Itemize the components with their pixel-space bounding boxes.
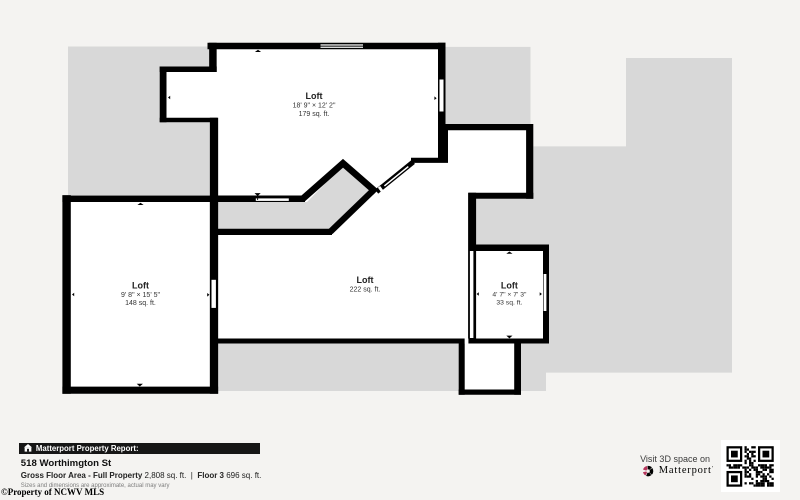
svg-text:148 sq. ft.: 148 sq. ft. (125, 300, 156, 307)
svg-text:222 sq. ft.: 222 sq. ft. (350, 287, 381, 294)
svg-text:Loft: Loft (357, 275, 374, 285)
svg-text:18' 9" × 12' 2": 18' 9" × 12' 2" (293, 103, 336, 110)
svg-text:Loft: Loft (501, 280, 518, 290)
svg-text:33 sq. ft.: 33 sq. ft. (496, 300, 522, 307)
svg-text:4' 7" × 7' 3": 4' 7" × 7' 3" (492, 292, 527, 299)
svg-text:Loft: Loft (306, 91, 323, 101)
svg-text:9' 8" × 15' 5": 9' 8" × 15' 5" (121, 292, 160, 299)
svg-text:179 sq. ft.: 179 sq. ft. (299, 111, 330, 118)
svg-text:Loft: Loft (132, 281, 149, 291)
